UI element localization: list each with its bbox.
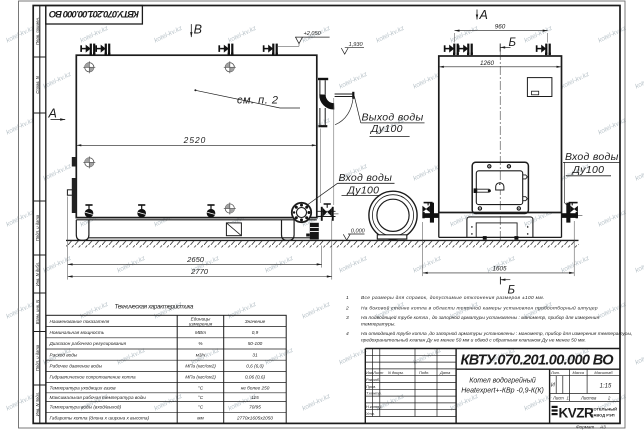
- svg-text:Рабочее давление воды: Рабочее давление воды: [50, 364, 103, 369]
- svg-text:3: 3: [346, 315, 349, 321]
- svg-text:Ду100: Ду100: [572, 164, 605, 176]
- svg-text:2770х1605х2050: 2770х1605х2050: [236, 416, 273, 421]
- svg-text:Справ. N: Справ. N: [35, 75, 40, 93]
- svg-text:KVZR: KVZR: [559, 406, 595, 421]
- svg-text:температуры.: температуры.: [361, 322, 396, 327]
- svg-text:Вход воды: Вход воды: [339, 172, 393, 184]
- svg-text:Выход воды: Выход воды: [362, 111, 424, 123]
- svg-text:КОТЕЛЬНЫЙ: КОТЕЛЬНЫЙ: [591, 407, 617, 412]
- svg-text:Котел водогрейный: Котел водогрейный: [469, 377, 536, 385]
- svg-text:Температура уходящих газов: Температура уходящих газов: [50, 385, 117, 390]
- svg-text:А: А: [479, 8, 488, 22]
- svg-text:Взам. инв. N: Взам. инв. N: [35, 299, 40, 324]
- svg-text:%: %: [198, 341, 202, 346]
- svg-text:измерения: измерения: [189, 322, 213, 327]
- svg-text:70/95: 70/95: [249, 405, 261, 410]
- svg-text:Номинальная мощность: Номинальная мощность: [50, 330, 105, 335]
- svg-text:960: 960: [495, 23, 506, 30]
- svg-text:0,000: 0,000: [351, 228, 366, 234]
- svg-text:КВТУ.070.201.00.000 ВО: КВТУ.070.201.00.000 ВО: [48, 9, 139, 20]
- svg-text:А3: А3: [599, 424, 606, 429]
- svg-text:МПа (кгс/см2): МПа (кгс/см2): [185, 375, 216, 380]
- svg-text:N докум.: N докум.: [388, 370, 404, 375]
- svg-text:На подводящей трубе котла , д: На подводящей трубе котла , до запорной …: [361, 314, 599, 321]
- svg-text:Н.контр.: Н.контр.: [366, 404, 382, 409]
- svg-text:И: И: [551, 383, 555, 389]
- svg-text:1:15: 1:15: [600, 383, 612, 389]
- svg-text:0,06 (0,6): 0,06 (0,6): [245, 375, 266, 380]
- svg-text:Диапазон рабочего регулировани: Диапазон рабочего регулирования: [49, 341, 127, 346]
- svg-text:Формат: Формат: [576, 424, 594, 429]
- svg-text:Б: Б: [509, 37, 517, 49]
- svg-text:Масса: Масса: [572, 370, 584, 375]
- svg-text:1,930: 1,930: [349, 42, 364, 48]
- svg-text:1: 1: [567, 396, 569, 401]
- svg-text:мм: мм: [197, 416, 204, 421]
- svg-text:Значение: Значение: [245, 319, 266, 324]
- svg-text:Дата: Дата: [439, 370, 451, 375]
- svg-text:Техническая характеристика: Техническая характеристика: [115, 304, 195, 311]
- svg-text:ЗАВОД РЭП: ЗАВОД РЭП: [591, 412, 615, 417]
- svg-text:А: А: [48, 106, 57, 120]
- svg-text:2520: 2520: [183, 135, 207, 145]
- svg-text:м3/ч: м3/ч: [196, 352, 206, 357]
- svg-text:0,6 (6,0): 0,6 (6,0): [246, 364, 264, 369]
- svg-text:1260: 1260: [480, 60, 495, 67]
- svg-text:Перв. примен.: Перв. примен.: [35, 17, 40, 45]
- svg-text:Пров.: Пров.: [366, 384, 376, 389]
- svg-text:1: 1: [346, 295, 349, 301]
- svg-text:°С: °С: [198, 395, 204, 400]
- svg-text:4: 4: [346, 331, 349, 337]
- svg-text:Инв. N подл.: Инв. N подл.: [35, 392, 40, 416]
- svg-text:МВт: МВт: [195, 330, 206, 335]
- svg-text:Подп.: Подп.: [419, 370, 429, 375]
- svg-text:°С: °С: [198, 405, 204, 410]
- svg-text:Б: Б: [508, 284, 516, 296]
- svg-text:Ду100: Ду100: [370, 123, 403, 135]
- svg-text:Гидравлическое сопротивление к: Гидравлическое сопротивление котла: [50, 375, 137, 380]
- svg-text:Температура воды (вход/выход): Температура воды (вход/выход): [50, 405, 122, 410]
- svg-text:Лист: Лист: [552, 396, 564, 401]
- svg-text:Инв. N дубл.: Инв. N дубл.: [35, 262, 40, 286]
- svg-text:Все размеры для справок, допус: Все размеры для справок, допустимые откл…: [361, 295, 545, 301]
- svg-text:115: 115: [251, 395, 259, 400]
- svg-text:2770: 2770: [190, 267, 209, 276]
- svg-text:Лит.: Лит.: [550, 370, 560, 375]
- svg-text:Утв.: Утв.: [366, 411, 375, 416]
- svg-text:31: 31: [252, 352, 258, 357]
- svg-text:0,9: 0,9: [252, 330, 259, 335]
- svg-text:На отводящей трубе котла ,до з: На отводящей трубе котла ,до запорной ар…: [361, 330, 632, 337]
- svg-text:Heatexpert+-КВр -0,9-К(К): Heatexpert+-КВр -0,9-К(К): [461, 387, 544, 394]
- svg-text:50-100: 50-100: [248, 341, 263, 346]
- svg-text:Ду100: Ду100: [347, 184, 380, 196]
- svg-text:°С: °С: [198, 385, 204, 390]
- svg-text:КВТУ.070.201.00.000 ВО: КВТУ.070.201.00.000 ВО: [461, 352, 615, 368]
- svg-text:На боковой стенке котла в обла: На боковой стенке котла в области топочн…: [361, 304, 598, 311]
- svg-text:2: 2: [345, 305, 349, 311]
- svg-text:МПа (кгс/см2): МПа (кгс/см2): [185, 364, 216, 369]
- svg-text:Т.контр.: Т.контр.: [366, 391, 382, 396]
- svg-text:1605: 1605: [492, 266, 507, 273]
- svg-text:Вход воды: Вход воды: [565, 151, 619, 163]
- svg-text:Подп. и дата: Подп. и дата: [35, 214, 40, 241]
- svg-text:Расход воды: Расход воды: [50, 352, 78, 357]
- svg-text:+2,050: +2,050: [304, 31, 322, 37]
- svg-text:Наименование показателя: Наименование показателя: [50, 319, 110, 324]
- svg-text:Лист: Лист: [372, 370, 384, 375]
- svg-text:Масштаб: Масштаб: [594, 370, 613, 375]
- svg-text:предохранительный клапан Ду н: предохранительный клапан Ду не менее 50 …: [361, 336, 586, 343]
- svg-text:Разраб.: Разраб.: [366, 377, 380, 382]
- svg-text:не более 250: не более 250: [241, 385, 270, 390]
- svg-text:В: В: [194, 23, 202, 37]
- svg-text:2650: 2650: [186, 255, 205, 264]
- svg-text:Подп. и дата: Подп. и дата: [35, 344, 40, 371]
- svg-text:Габариты котла (длина х ширина: Габариты котла (длина х ширина х высота): [50, 416, 150, 421]
- svg-text:Листов: Листов: [580, 396, 597, 401]
- svg-text:см. п. 2: см. п. 2: [237, 94, 278, 106]
- svg-text:Максимальная рабочая температу: Максимальная рабочая температура воды: [50, 395, 147, 400]
